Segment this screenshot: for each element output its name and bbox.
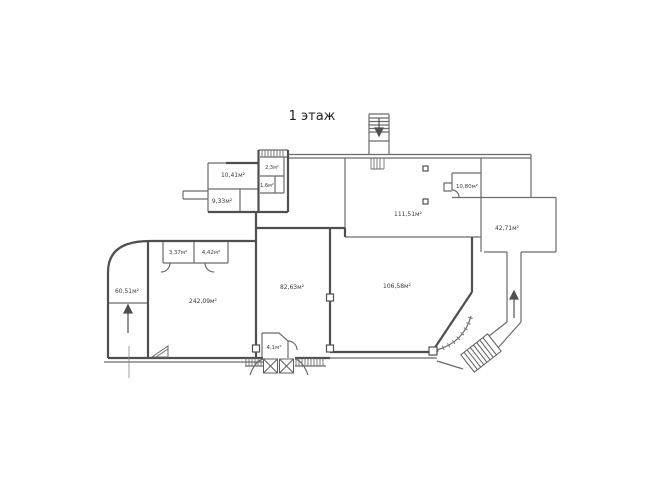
room-label-10-41: 10,41м² <box>221 172 246 179</box>
up-arrow-right-corridor-icon <box>510 291 518 318</box>
direction-arrows <box>124 118 518 333</box>
room-label-9-33: 9,33м² <box>212 198 233 205</box>
entrance-double-door <box>264 359 294 373</box>
ramp-triangle <box>152 346 168 357</box>
room-label-42-71: 42,71м² <box>495 225 520 232</box>
exterior-staircase <box>461 334 501 372</box>
room-label-3-37: 3,37м² <box>169 249 188 256</box>
down-arrow-stair-tower-icon <box>375 118 383 136</box>
floor-plan-drawing: 1 этаж <box>0 0 653 489</box>
floor-title: 1 этаж <box>289 109 336 124</box>
up-arrow-left-corridor-icon <box>124 305 132 333</box>
room-label-106-58: 106,58м² <box>383 283 412 290</box>
room-label-10-80: 10,80м² <box>456 183 478 190</box>
room-label-4-42: 4,42м² <box>202 249 221 256</box>
room-label-111-51: 111,51м² <box>394 211 423 218</box>
room-label-wc-upper: 2,3м² <box>265 165 279 171</box>
room-label-82-63: 82,63м² <box>280 284 305 291</box>
room-label-242-09: 242,09м² <box>189 298 218 305</box>
room-labels: 10,41м² 9,33м² 2,3м² 1,6м² 111,51м² 10,8… <box>115 165 520 351</box>
room-label-4-1: 4,1м² <box>266 344 281 351</box>
colonnade-ticks <box>437 316 471 350</box>
floor-plan-page: 1 этаж <box>0 0 653 489</box>
room-label-wc-lower: 1,6м² <box>260 183 274 189</box>
room-label-60-51: 60,51м² <box>115 288 140 295</box>
